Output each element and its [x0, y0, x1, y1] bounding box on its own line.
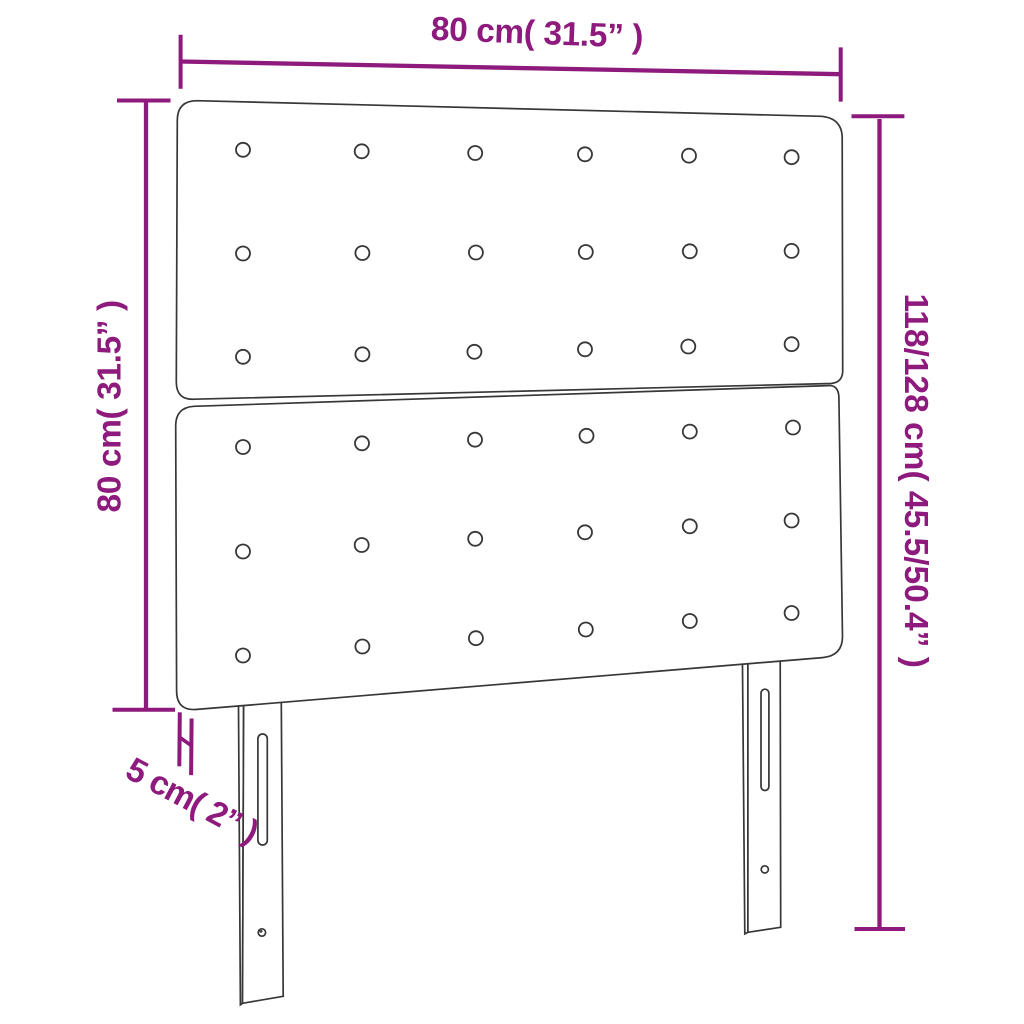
svg-text:118/128 cm( 45.5/50.4” ): 118/128 cm( 45.5/50.4” ) — [897, 294, 934, 668]
svg-text:80 cm( 31.5” ): 80 cm( 31.5” ) — [91, 300, 128, 512]
svg-text:80 cm( 31.5” ): 80 cm( 31.5” ) — [430, 11, 644, 56]
